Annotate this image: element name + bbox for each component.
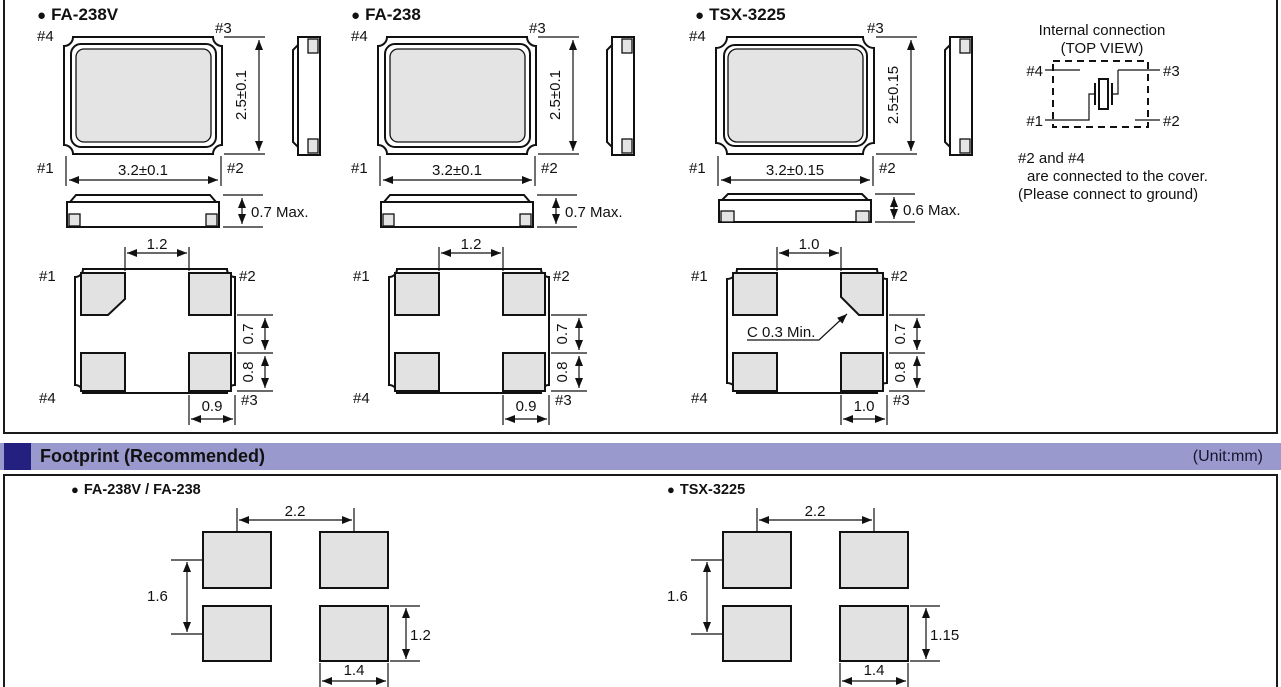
thickness-dim: 0.7 Max.: [565, 204, 623, 221]
pad-height-dim: 0.8: [240, 362, 257, 383]
width-dim: 3.2±0.1: [118, 162, 168, 179]
svg-text:1.2: 1.2: [410, 627, 431, 644]
svg-text:1.6: 1.6: [667, 588, 688, 605]
footprint-fa238v-fa238: ●FA-238V / FA-238 2.2 1.6: [63, 482, 583, 687]
pitch-y-dim: 1.6: [667, 560, 724, 634]
pad-view: #1 #2 #4 #3 1.0 0.7 0.8 C 0.3 Min. 1.: [691, 236, 925, 425]
package-title: ●FA-238: [351, 5, 421, 25]
pin-label: #1: [39, 268, 56, 285]
top-view: #4 #3 #1 #2 2.5±0.1 3.2±0.1: [351, 23, 579, 186]
pin-label: #2: [553, 268, 570, 285]
thickness-dim: 0.7 Max.: [251, 204, 309, 221]
pin-label: #1: [351, 160, 368, 177]
side-view: [607, 37, 634, 155]
pin-label: #4: [37, 28, 54, 45]
package-name: FA-238: [365, 5, 421, 24]
profile-view: 0.7 Max.: [67, 195, 309, 227]
package-tsx3225: ●TSX-3225 #4 #3 #1 #2 2.5±0.15 3.2±0.15: [663, 0, 993, 433]
pad-bottom-dim: 0.9: [516, 398, 537, 415]
pin-label: #2: [227, 160, 244, 177]
package-title: ●FA-238V: [37, 5, 118, 25]
pin-label: #4: [39, 390, 56, 407]
height-dim: 2.5±0.1: [547, 70, 564, 120]
footprint-section-header: Footprint (Recommended) (Unit:mm): [0, 443, 1281, 470]
package-fa238v: ●FA-238V #4 #3 #1 #2 2.5±0.1 3.2±0.1: [11, 0, 341, 433]
dimensions-panel: ●FA-238V #4 #3 #1 #2 2.5±0.1 3.2±0.1: [3, 0, 1278, 434]
pad-gap-dim: 0.7: [892, 324, 909, 345]
height-dim: 2.5±0.1: [233, 70, 250, 120]
section-title: Footprint (Recommended): [40, 443, 265, 470]
height-dim: 2.5±0.15: [885, 66, 902, 124]
bullet-icon: ●: [667, 482, 675, 497]
pin-label: #4: [353, 390, 370, 407]
package-name: TSX-3225: [709, 5, 786, 24]
pin-label: #2: [879, 160, 896, 177]
pin-label: #1: [691, 268, 708, 285]
pin-label: #1: [353, 268, 370, 285]
footprint-tsx3225: ●TSX-3225 2.2 1.6 1.15: [583, 482, 1103, 687]
package-fa238: ●FA-238 #4 #3 #1 #2 2.5±0.1 3.2±0.1: [325, 0, 655, 433]
package-title: ●TSX-3225: [695, 5, 786, 25]
pad-height-dim: 1.15: [910, 606, 959, 661]
cover-note-line2: are connected to the cover.: [1027, 168, 1208, 185]
pin-label: #3: [555, 392, 572, 409]
package-drawing: #4 #3 #1 #2 2.5±0.1 3.2±0.1: [11, 23, 341, 433]
bullet-icon: ●: [695, 7, 704, 24]
footprint-drawing: 2.2 1.6 1.15 1.4: [583, 504, 1103, 687]
package-name: FA-238V: [51, 5, 118, 24]
footprint-name: FA-238V / FA-238: [84, 482, 201, 498]
chamfer-note: C 0.3 Min.: [747, 324, 815, 341]
bullet-icon: ●: [37, 7, 46, 24]
cover-note-line1: #2 and #4: [1018, 150, 1085, 167]
cover-note-line3: (Please connect to ground): [1018, 186, 1198, 203]
footprint-title: ●FA-238V / FA-238: [71, 482, 201, 498]
svg-text:1.15: 1.15: [930, 627, 959, 644]
pitch-y-dim: 1.6: [147, 560, 204, 634]
package-drawing: #4 #3 #1 #2 2.5±0.1 3.2±0.1: [325, 23, 655, 433]
pad-gap-dim: 0.7: [240, 324, 257, 345]
pad-height-dim: 0.8: [892, 362, 909, 383]
internal-connection-title: Internal connection: [1039, 22, 1166, 39]
package-drawing: #4 #3 #1 #2 2.5±0.15 3.2±0.15: [663, 23, 993, 433]
pin-label: #1: [689, 160, 706, 177]
bullet-icon: ●: [71, 482, 79, 497]
footprint-name: TSX-3225: [680, 482, 745, 498]
svg-text:1.4: 1.4: [344, 662, 365, 679]
footprint-panel: ●FA-238V / FA-238 2.2 1.6: [3, 474, 1278, 687]
datasheet-page: { "glyphs": {"bullet": "●"}, "colors": {…: [0, 0, 1281, 687]
unit-label: (Unit:mm): [1193, 443, 1263, 470]
pad-bottom-dim: 0.9: [202, 398, 223, 415]
pin-label: #4: [691, 390, 708, 407]
pin-label: #4: [1026, 63, 1043, 80]
pin-label: #2: [239, 268, 256, 285]
pad-gap-dim: 0.7: [554, 324, 571, 345]
svg-text:1.4: 1.4: [864, 662, 885, 679]
pad-bottom-dim: 1.0: [854, 398, 875, 415]
pin-label: #3: [1163, 63, 1180, 80]
pin-label: #3: [867, 23, 884, 37]
width-dim: 3.2±0.15: [766, 162, 824, 179]
svg-text:2.2: 2.2: [285, 504, 306, 520]
internal-connection: Internal connection (TOP VIEW) #4 #3 #1 …: [985, 13, 1281, 223]
side-view: [945, 37, 972, 155]
pin-label: #1: [37, 160, 54, 177]
pin-label: #4: [689, 28, 706, 45]
pad-view: #1 #2 #4 #3 1.2 0.7 0.8 0.9: [353, 236, 587, 425]
pad-height-dim: 1.2: [390, 606, 431, 661]
pad-width-dim: 1.4: [320, 662, 388, 687]
internal-connection-drawing: Internal connection (TOP VIEW) #4 #3 #1 …: [985, 13, 1281, 223]
pin-label: #2: [891, 268, 908, 285]
pitch-x-dim: 2.2: [757, 504, 874, 531]
pad-top-dim: 1.2: [461, 236, 482, 253]
pad-view: #1 #2 #4 #3 1.2 0.7 0.8 0.9: [39, 236, 273, 425]
pad-top-dim: 1.0: [799, 236, 820, 253]
footprint-title: ●TSX-3225: [667, 482, 745, 498]
width-dim: 3.2±0.1: [432, 162, 482, 179]
pad-width-dim: 1.4: [840, 662, 908, 687]
top-view: #4 #3 #1 #2 2.5±0.15 3.2±0.15: [689, 23, 917, 186]
svg-text:2.2: 2.2: [805, 504, 826, 520]
profile-view: 0.6 Max.: [719, 194, 961, 222]
header-square-icon: [4, 443, 31, 470]
pin-label: #4: [351, 28, 368, 45]
pin-label: #3: [215, 23, 232, 37]
thickness-dim: 0.6 Max.: [903, 202, 961, 219]
pin-label: #3: [893, 392, 910, 409]
svg-text:1.6: 1.6: [147, 588, 168, 605]
pad-top-dim: 1.2: [147, 236, 168, 253]
pin-label: #2: [541, 160, 558, 177]
pitch-x-dim: 2.2: [237, 504, 354, 531]
footprint-drawing: 2.2 1.6 1.2 1.4: [63, 504, 583, 687]
profile-view: 0.7 Max.: [381, 195, 623, 227]
bullet-icon: ●: [351, 7, 360, 24]
side-view: [293, 37, 320, 155]
pin-label: #3: [529, 23, 546, 37]
pad-height-dim: 0.8: [554, 362, 571, 383]
pin-label: #3: [241, 392, 258, 409]
top-view: #4 #3 #1 #2 2.5±0.1 3.2±0.1: [37, 23, 265, 186]
crystal-symbol: [1045, 70, 1160, 120]
pin-label: #2: [1163, 113, 1180, 130]
internal-connection-subtitle: (TOP VIEW): [1061, 40, 1144, 57]
pin-label: #1: [1026, 113, 1043, 130]
